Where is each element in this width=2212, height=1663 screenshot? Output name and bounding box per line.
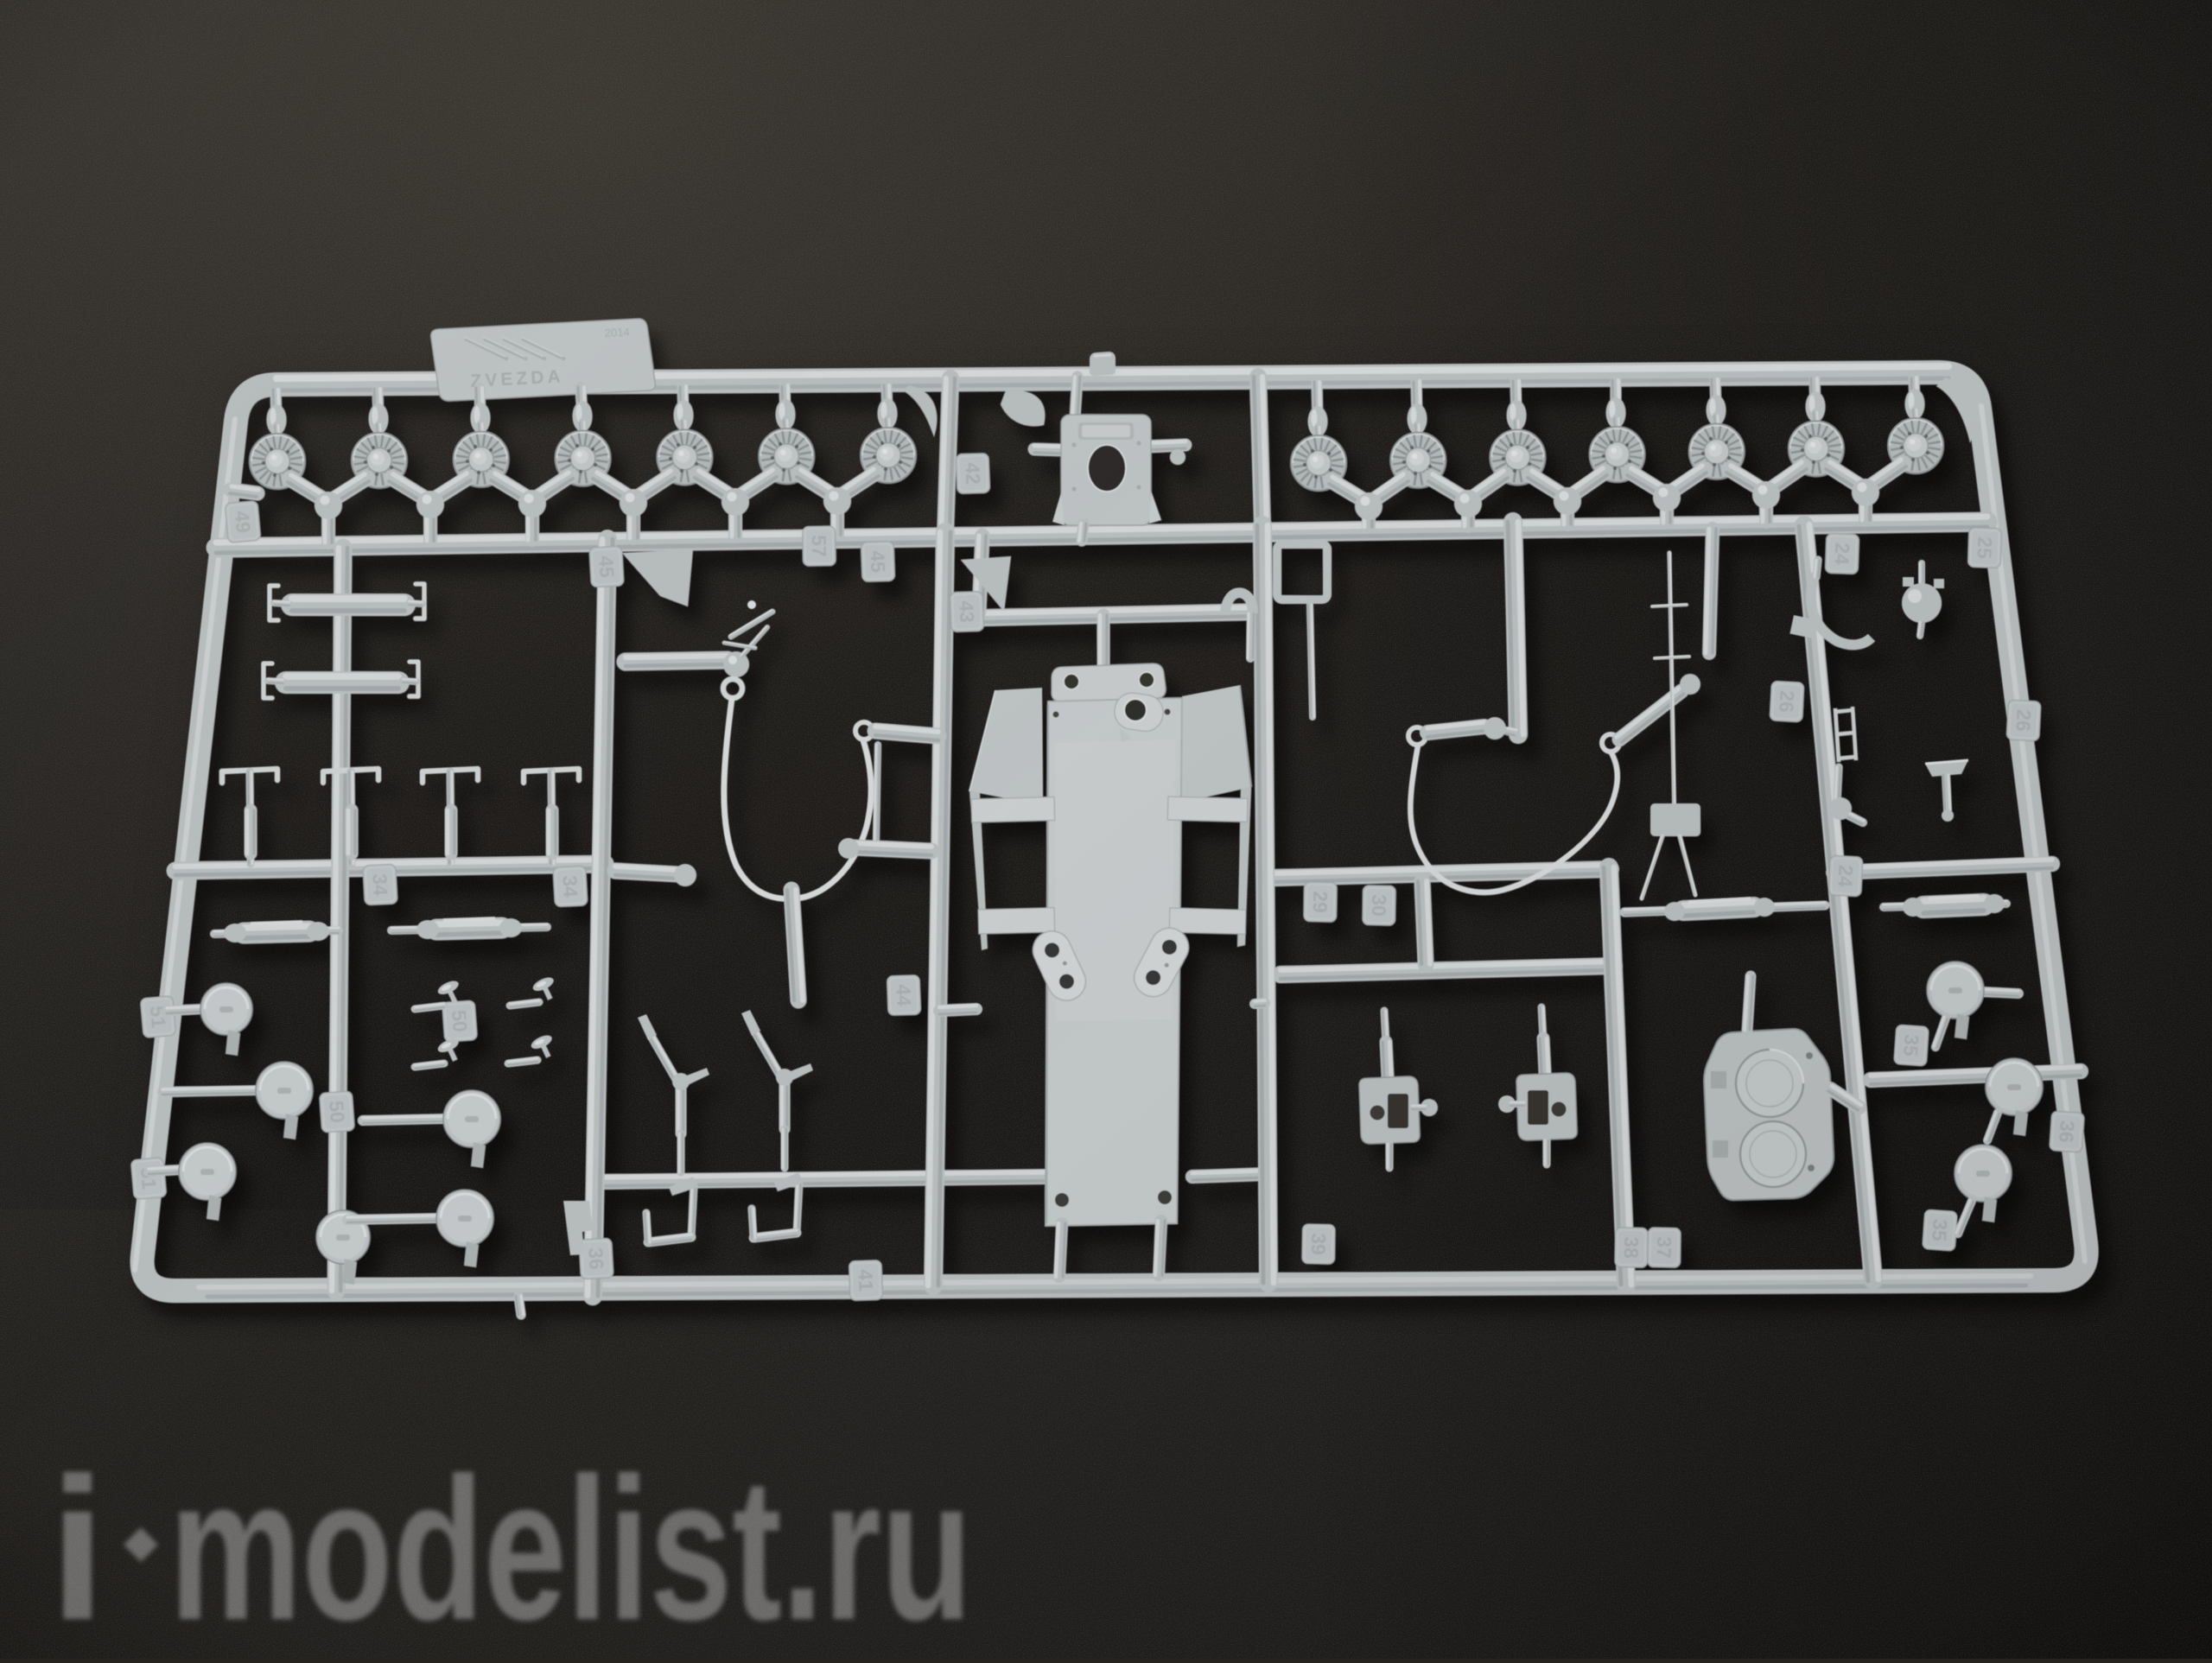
svg-text:i: i bbox=[49, 1435, 105, 1659]
svg-text:modelist.ru: modelist.ru bbox=[169, 1435, 972, 1659]
